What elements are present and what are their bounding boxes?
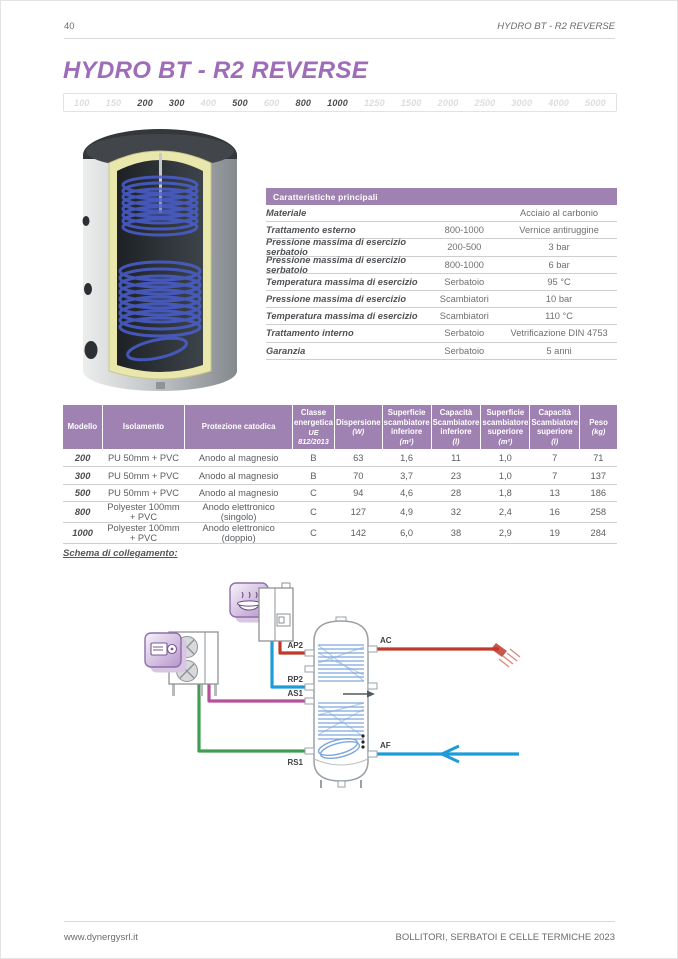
cell: 2,4	[481, 502, 530, 523]
capacity-option: 200	[137, 98, 153, 108]
label-ap2: AP2	[287, 641, 303, 650]
char-value: 6 bar	[501, 260, 617, 270]
col-header-protezione: Protezione catodica	[185, 405, 293, 449]
cell: 186	[580, 484, 617, 501]
char-value: 110 °C	[501, 311, 617, 321]
char-scope: 800-1000	[427, 260, 501, 270]
datasheet-page: 40 HYDRO BT - R2 REVERSE HYDRO BT - R2 R…	[0, 0, 678, 959]
schema-caption: Schema di collegamento:	[63, 548, 178, 559]
label-rs1: RS1	[287, 758, 303, 767]
cell-model: 200	[63, 449, 102, 466]
cell: Anodo al magnesio	[185, 449, 293, 466]
connection-schema-diagram: AP2 RP2 AS1 RS1 AC AF	[139, 575, 523, 799]
label-rp2: RP2	[287, 675, 303, 684]
cell: 19	[530, 523, 580, 544]
cell: 258	[580, 502, 617, 523]
cell: 1,8	[481, 484, 530, 501]
footer-website-link[interactable]: www.dynergysrl.it	[64, 932, 138, 943]
cell: 7	[530, 467, 580, 484]
cell: Anodo elettronico (singolo)	[185, 502, 293, 523]
table-row: 200 PU 50mm + PVC Anodo al magnesio B 63…	[63, 449, 617, 466]
capacity-option: 500	[232, 98, 248, 108]
label-af: AF	[380, 741, 391, 750]
page-title: HYDRO BT - R2 REVERSE	[63, 57, 368, 85]
cell: B	[293, 449, 335, 466]
table-row: 500 PU 50mm + PVC Anodo al magnesio C 94…	[63, 484, 617, 501]
shower-icon	[491, 643, 520, 667]
char-scope: Serbatoio	[427, 277, 501, 287]
models-table: Modello Isolamento Protezione catodica C…	[63, 405, 617, 544]
characteristics-row: Garanzia Serbatoio 5 anni	[266, 343, 617, 360]
cell: PU 50mm + PVC	[102, 449, 185, 466]
cell-model: 500	[63, 484, 102, 501]
cell-model: 300	[63, 467, 102, 484]
char-label: Garanzia	[266, 346, 427, 356]
page-footer: www.dynergysrl.it BOLLITORI, SERBATOI E …	[64, 921, 615, 943]
boiler-unit	[259, 583, 293, 641]
char-scope: 800-1000	[427, 225, 501, 235]
char-label: Pressione massima di esercizio	[266, 294, 427, 304]
characteristics-row: Temperatura massima di esercizio Scambia…	[266, 308, 617, 325]
cell: Anodo al magnesio	[185, 484, 293, 501]
characteristics-row: Temperatura massima di esercizio Serbato…	[266, 274, 617, 291]
cell: B	[293, 467, 335, 484]
cell-model: 800	[63, 502, 102, 523]
char-value: 3 bar	[501, 242, 617, 252]
side-port	[83, 216, 90, 226]
capacity-option: 2500	[475, 98, 496, 108]
cell: 71	[580, 449, 617, 466]
capacity-option: 1500	[401, 98, 422, 108]
cell: Anodo al magnesio	[185, 467, 293, 484]
cell: 4,6	[382, 484, 431, 501]
air-conditioner-icon	[145, 633, 187, 673]
col-header-cap-inf: Capacità Scambiatore inferiore(l)	[431, 405, 481, 449]
product-cutaway-image	[77, 123, 243, 399]
characteristics-row: Trattamento interno Serbatoio Vetrificaz…	[266, 325, 617, 342]
table-row: 800 Polyester 100mm + PVC Anodo elettron…	[63, 502, 617, 523]
cell: 6,0	[382, 523, 431, 544]
cell: C	[293, 502, 335, 523]
side-port	[84, 283, 92, 295]
label-ac: AC	[380, 636, 392, 645]
cell: Polyester 100mm + PVC	[102, 502, 185, 523]
char-value: Vetrificazione DIN 4753	[501, 328, 617, 338]
characteristics-table-header: Caratteristiche principali	[266, 188, 617, 205]
cell: 38	[431, 523, 481, 544]
cell: 32	[431, 502, 481, 523]
cell: 1,0	[481, 467, 530, 484]
char-label: Materiale	[266, 208, 427, 218]
cell: 94	[335, 484, 383, 501]
cell: 1,6	[382, 449, 431, 466]
col-header-classe: Classe energeticaUE 812/2013	[293, 405, 335, 449]
capacity-option: 1000	[327, 98, 348, 108]
bottom-fitting	[156, 382, 165, 389]
characteristics-row: Pressione massima di esercizio Scambiato…	[266, 291, 617, 308]
cell: C	[293, 484, 335, 501]
cell: Anodo elettronico (doppio)	[185, 523, 293, 544]
cell: 127	[335, 502, 383, 523]
col-header-modello: Modello	[63, 405, 102, 449]
char-value: 5 anni	[501, 346, 617, 356]
capacity-option: 300	[169, 98, 185, 108]
col-header-sup-sup: Superficie scambiatore superiore(m²)	[481, 405, 530, 449]
cell: 137	[580, 467, 617, 484]
cell: 70	[335, 467, 383, 484]
char-label: Trattamento interno	[266, 328, 427, 338]
cell: 4,9	[382, 502, 431, 523]
characteristics-row: Pressione massima di esercizio serbatoio…	[266, 257, 617, 274]
char-scope: Scambiatori	[427, 294, 501, 304]
cell-model: 1000	[63, 523, 102, 544]
header-product-name: HYDRO BT - R2 REVERSE	[497, 21, 615, 32]
capacity-option: 400	[201, 98, 217, 108]
capacity-option: 800	[295, 98, 311, 108]
capacity-option: 1250	[364, 98, 385, 108]
capacity-option: 150	[106, 98, 122, 108]
col-header-isolamento: Isolamento	[102, 405, 185, 449]
characteristics-table: Caratteristiche principali Materiale Acc…	[266, 188, 617, 360]
cell: 142	[335, 523, 383, 544]
footer-doc-title: BOLLITORI, SERBATOI E CELLE TERMICHE 202…	[396, 932, 615, 943]
label-as1: AS1	[287, 689, 303, 698]
cell: PU 50mm + PVC	[102, 467, 185, 484]
cell: PU 50mm + PVC	[102, 484, 185, 501]
char-scope: Serbatoio	[427, 328, 501, 338]
char-value: Vernice antiruggine	[501, 225, 617, 235]
side-port	[85, 341, 98, 359]
capacity-option: 2000	[438, 98, 459, 108]
page-header: 40 HYDRO BT - R2 REVERSE	[64, 21, 615, 39]
char-label: Trattamento esterno	[266, 225, 427, 235]
cell: 2,9	[481, 523, 530, 544]
char-label: Temperatura massima di esercizio	[266, 311, 427, 321]
capacity-option: 600	[264, 98, 280, 108]
cell: 63	[335, 449, 383, 466]
models-table-header-row: Modello Isolamento Protezione catodica C…	[63, 405, 617, 449]
cell: 7	[530, 449, 580, 466]
cell: 16	[530, 502, 580, 523]
char-value: Acciaio al carbonio	[501, 208, 617, 218]
col-header-sup-inf: Superficie scambiatore inferiore(m²)	[382, 405, 431, 449]
capacity-strip: 100 150 200 300 400 500 600 800 1000 125…	[63, 93, 617, 112]
cell: Polyester 100mm + PVC	[102, 523, 185, 544]
cell: 13	[530, 484, 580, 501]
char-scope: Serbatoio	[427, 346, 501, 356]
cell: C	[293, 523, 335, 544]
storage-tank	[305, 617, 377, 788]
col-header-cap-sup: Capacità Scambiatore superiore(l)	[530, 405, 580, 449]
cell: 23	[431, 467, 481, 484]
col-header-peso: Peso(kg)	[580, 405, 617, 449]
page-number: 40	[64, 21, 75, 32]
table-row: 300 PU 50mm + PVC Anodo al magnesio B 70…	[63, 467, 617, 484]
tank-cutaway-illustration	[77, 123, 243, 399]
capacity-option: 100	[74, 98, 90, 108]
char-value: 10 bar	[501, 294, 617, 304]
col-header-dispersione: Dispersione(W)	[335, 405, 383, 449]
cell: 3,7	[382, 467, 431, 484]
table-row: 1000 Polyester 100mm + PVC Anodo elettro…	[63, 523, 617, 544]
cell: 1,0	[481, 449, 530, 466]
cell: 284	[580, 523, 617, 544]
char-label: Pressione massima di esercizio serbatoio	[266, 255, 427, 275]
cell: 28	[431, 484, 481, 501]
capacity-option: 5000	[585, 98, 606, 108]
char-scope: Scambiatori	[427, 311, 501, 321]
char-value: 95 °C	[501, 277, 617, 287]
char-scope: 200-500	[427, 242, 501, 252]
sensor-dots	[361, 734, 364, 748]
capacity-option: 3000	[511, 98, 532, 108]
cell: 11	[431, 449, 481, 466]
capacity-option: 4000	[548, 98, 569, 108]
characteristics-row: Materiale Acciaio al carbonio	[266, 205, 617, 222]
char-label: Temperatura massima di esercizio	[266, 277, 427, 287]
